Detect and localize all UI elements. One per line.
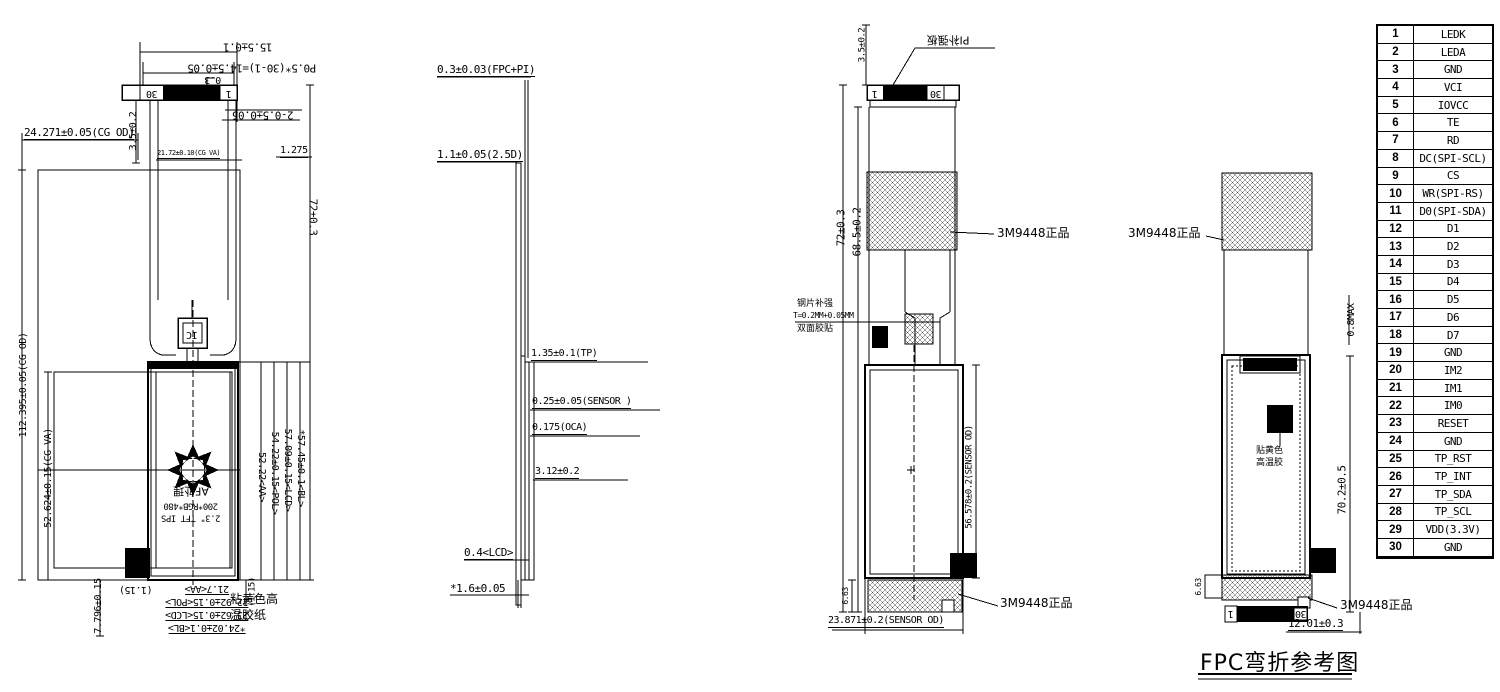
pin-signal-label: TP_SCL [1414,504,1492,522]
pin-table: 1 LEDK 2 LEDA 3 GND 4 VCI 5 IOVCC 6 TE 7… [1376,24,1494,559]
fpc-folded-view-drawing [1198,173,1362,679]
af-treatment-note: AF处理 [173,486,209,497]
pin-30-label: 30 [146,88,157,98]
yellow-tape-note-line2: 温胶纸 [230,609,266,621]
dim-12-01: 12.01±0.3 [1288,618,1343,631]
pin-signal-label: LEDA [1414,44,1492,62]
pin-signal-label: D5 [1414,291,1492,309]
pin-signal-label: IM1 [1414,380,1492,398]
pin-1-label: 1 [872,88,878,98]
pin-signal-label: RESET [1414,415,1492,433]
pin-signal-label: GND [1414,539,1492,557]
dim-6-63: 6.63 [1195,578,1203,595]
dim-cg-od-height: 112.395±0.05(CG OD) [19,333,29,438]
adhesive-3m9448-note-bottom: 3M9448正品 [1000,597,1073,609]
pin-signal-label: LEDK [1414,26,1492,44]
yellow-tape-note-line1: 粘黄色高 [230,593,278,605]
pin-signal-label: GND [1414,433,1492,451]
pin-signal-label: VDD(3.3V) [1414,521,1492,539]
steel-stiffener-note-line1: 钢片补强 [797,300,833,309]
adhesive-3m9448-note-top: 3M9448正品 [997,227,1070,239]
pin-signal-label: TP_RST [1414,451,1492,469]
pin-number: 5 [1378,97,1414,115]
pin-number: 10 [1378,185,1414,203]
pin-signal-label: TP_INT [1414,468,1492,486]
pin-number: 1 [1378,26,1414,44]
pin-signal-label: RD [1414,132,1492,150]
pin-number: 26 [1378,468,1414,486]
pin-number: 11 [1378,203,1414,221]
dim-sensor-thickness: 0.25±0.05(SENSOR ) [532,397,631,409]
panel-size-note: 2.3" TFT IPS [161,513,220,522]
dim-lcd-height: 57.09±0.15<LCD> [282,429,292,512]
pin-signal-label: WR(SPI-RS) [1414,185,1492,203]
pin-number: 4 [1378,79,1414,97]
pin-signal-label: D7 [1414,327,1492,345]
dim-aa-height: 52.22<AA> [256,452,266,502]
dim-aa-width: 21.7<AA> [185,583,229,595]
adhesive-pad-top [1222,173,1312,250]
adhesive-pad-top [867,172,957,250]
pi-stiffener-note: PI补强板 [927,35,970,46]
pin-signal-label: D2 [1414,238,1492,256]
dim-module-length: 72±0.3 [836,210,847,247]
pin-number: 12 [1378,221,1414,239]
adhesive-3m9448-note-top: 3M9448正品 [1128,227,1201,239]
pin-number: 15 [1378,274,1414,292]
dim-folded-length: 70.2±0.5 [1337,466,1348,515]
pin-number: 21 [1378,380,1414,398]
adhesive-pad-bottom [1222,575,1312,600]
pin-1-label: 1 [226,88,232,98]
dim-module-length: 72±0.3 [308,199,319,236]
dim-sensor-od-width: 23.871±0.2(SENSOR OD) [828,616,944,628]
dim-bl-width: *24.02±0.1<BL> [168,622,245,634]
dim-lcm-thickness: 3.12±0.2 [535,467,579,479]
dim-7-796: 7.796±0.15 [94,578,104,633]
ic-label: IC [186,329,197,339]
pin-signal-label: TP_SDA [1414,486,1492,504]
pin-number: 28 [1378,504,1414,522]
dim-pol-height: 54.22±0.15<POL> [269,432,279,515]
pin-1-label: 1 [1228,608,1234,618]
dim-cg-thickness: 1.1±0.05(2.5D) [437,149,523,162]
dim-oca-thickness: 0.175(OCA) [532,423,587,435]
pin-signal-label: CS [1414,168,1492,186]
pin-number: 22 [1378,397,1414,415]
pin-number: 8 [1378,150,1414,168]
dim-1-15-left: (1.15) [119,584,152,594]
dim-3-5-back: 3.5±0.2 [859,28,868,62]
pin-number: 25 [1378,451,1414,469]
yellow-glue-note-line2: 高温胶 [1256,459,1283,468]
pin-number: 29 [1378,521,1414,539]
pin-number: 23 [1378,415,1414,433]
steel-stiffener-note-line3: 双面胶贴 [797,325,833,334]
dim-pin-pitch: P0.5*(30-1)=14.5±0.05 [188,63,317,74]
dim-tp-thickness: 1.35±0.1(TP) [531,349,597,361]
pin-signal-label: D0(SPI-SDA) [1414,203,1492,221]
pin-signal-label: IM2 [1414,362,1492,380]
pin-number: 3 [1378,61,1414,79]
dim-cg-va-width: 21.72±0.10(CG VA) [157,150,220,159]
pin-number: 16 [1378,291,1414,309]
pin-signal-label: D3 [1414,256,1492,274]
dim-sensor-od-height: 56.578±0.2(SENSOR OD) [966,425,975,528]
pin-number: 2 [1378,44,1414,62]
yellow-glue-note-line1: 贴黄色 [1256,447,1283,456]
pin-signal-label: D4 [1414,274,1492,292]
pin-number: 27 [1378,486,1414,504]
pin-number: 13 [1378,238,1414,256]
dim-lcd-glass-thickness: 0.4<LCD> [464,547,513,560]
pin-number: 14 [1378,256,1414,274]
pin-signal-label: GND [1414,61,1492,79]
dim-68-5: 68.5±0.2 [852,208,863,257]
dim-6-63: 6.63 [842,587,850,604]
dim-fpc-thickness: 0.3±0.03(FPC+PI) [437,64,535,77]
pin-number: 9 [1378,168,1414,186]
pin-signal-label: TE [1414,114,1492,132]
steel-stiffener-note-line2: T=0.2MM+0.05MM [793,312,853,320]
engineering-drawing-sheet: 15.5±0.1 P0.5*(30-1)=14.5±0.05 0.3 30 1 … [0,0,1500,692]
pin-number: 20 [1378,362,1414,380]
dim-cg-va-height: 52.624±0.15(CG VA) [44,428,54,527]
dim-conn-tail: 2-0.5±0.05 [232,110,293,121]
dim-0-3: 0.3 [205,74,222,84]
dim-cg-od-width: 24.271±0.05(CG OD) [24,127,134,140]
pin-signal-label: IOVCC [1414,97,1492,115]
resolution-note: 200*RGB*480 [164,501,218,510]
pin-signal-label: IM0 [1414,397,1492,415]
dim-0-8-max: 0.8MAX [1347,303,1357,336]
pin-signal-label: D1 [1414,221,1492,239]
pin-number: 18 [1378,327,1414,345]
pin-signal-label: GND [1414,344,1492,362]
pin-number: 6 [1378,114,1414,132]
dim-total-thickness: *1.6±0.05 [450,583,505,594]
adhesive-3m9448-note-bottom: 3M9448正品 [1340,599,1413,611]
pin-number: 30 [1378,539,1414,557]
pin-number: 24 [1378,433,1414,451]
pin-signal-label: D6 [1414,309,1492,327]
pin-number: 19 [1378,344,1414,362]
dim-1-275: 1.275 [280,146,308,158]
fpc-bend-reference-caption: FPC弯折参考图 [1200,645,1359,677]
dim-pin-span: 15.5±0.1 [224,42,273,53]
pin-number: 17 [1378,309,1414,327]
pin-signal-label: DC(SPI-SCL) [1414,150,1492,168]
pin-signal-label: VCI [1414,79,1492,97]
pin-30-label: 30 [930,88,941,98]
pin-number: 7 [1378,132,1414,150]
dim-bl-height: *57.45±0.1<BL> [295,429,305,506]
